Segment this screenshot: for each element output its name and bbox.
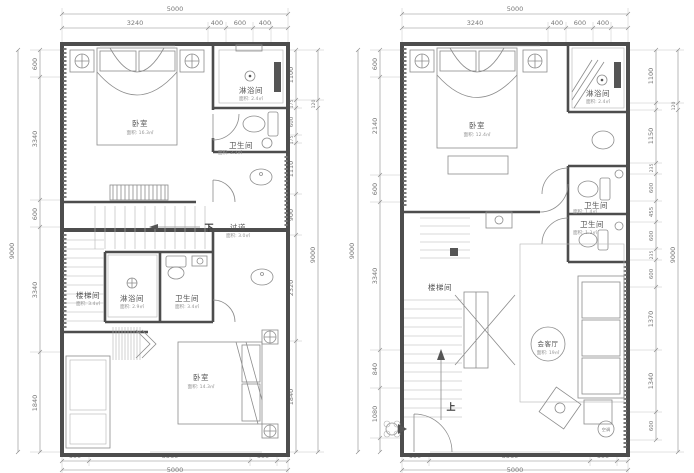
room-label-bath-1: 卫生间 <box>584 200 608 210</box>
room-label-bedroom-lower: 卧室 <box>193 372 209 382</box>
ac-label: 空调 <box>602 426 610 433</box>
dim-right-seg: 235 <box>649 164 655 173</box>
dim-left-seg: 3340 <box>371 268 379 285</box>
dim-top-total: 5000 <box>507 5 524 13</box>
stair-direction-label: 上 <box>446 401 455 413</box>
dim-right-seg: 600 <box>649 268 655 279</box>
dim-top-total: 5000 <box>167 5 184 13</box>
side-table-icon <box>584 400 612 424</box>
walls-left-plan <box>62 44 288 455</box>
dim-right-seg: 1370 <box>647 311 655 328</box>
entry-door-icon <box>384 414 452 452</box>
room-area: 面积: 12.4㎡ <box>463 131 490 138</box>
dim-left-seg: 2140 <box>371 118 379 135</box>
dim-right-seg: 600 <box>649 420 655 431</box>
lounge-chair-icon <box>539 387 581 429</box>
dim-left-seg: 600 <box>371 183 379 195</box>
dim-left-seg: 840 <box>371 363 379 375</box>
sofa-icon <box>520 244 624 402</box>
dim-top-seg: 400 <box>259 19 271 27</box>
stairs-up-icon <box>404 212 512 420</box>
ceiling-fan-icon <box>410 50 547 72</box>
room-area: 面积: 16.3㎡ <box>126 129 153 136</box>
dim-left-seg: 600 <box>31 58 39 70</box>
room-area: 面积: 2.4㎡ <box>239 95 264 102</box>
dim-right-seg: 600 <box>649 230 655 241</box>
dim-top-seg: 3240 <box>127 19 144 27</box>
door-arc <box>213 300 235 322</box>
dim-right-outer: 120 <box>671 102 677 111</box>
tv-stand-icon <box>455 292 515 368</box>
dim-right-seg: 600 <box>649 182 655 193</box>
floor-plan-sheet: 5000 3240 400 600 400 9000 600 3340 600 … <box>0 0 694 473</box>
ceiling-fan-icon <box>70 50 204 72</box>
dim-right-outer: 120 <box>311 100 317 109</box>
door-arc <box>213 180 235 202</box>
radiator-icon <box>110 185 168 200</box>
room-area: 面积: 14.3㎡ <box>187 383 214 390</box>
room-area: 面积: 3.4㎡ <box>76 300 101 307</box>
room-label-bath-upper: 卫生间 <box>229 140 253 150</box>
room-label-living: 会客厅 <box>538 339 559 348</box>
dim-right-seg: 235 <box>649 251 655 260</box>
bed-icon <box>437 48 517 174</box>
room-label-corridor: 过道 <box>230 222 246 232</box>
room-area: 面积: 1.3㎡ <box>573 229 598 236</box>
dim-left-seg: 600 <box>371 58 379 70</box>
dim-side-total: 9000 <box>8 243 16 260</box>
dim-top-seg: 3240 <box>467 19 484 27</box>
room-area: 面积: 2.2㎡ <box>218 149 243 156</box>
toilet-icon <box>578 170 623 200</box>
dim-right-seg: 1150 <box>647 128 655 145</box>
room-label-bath-2: 卫生间 <box>580 219 604 229</box>
sink-icon <box>592 131 614 149</box>
room-label-shower-upper: 淋浴间 <box>239 85 263 95</box>
dim-top-seg: 600 <box>234 19 246 27</box>
dim-left-seg: 3340 <box>31 131 39 148</box>
dim-bottom-total: 5000 <box>507 466 524 473</box>
stairs-down-icon <box>95 206 205 249</box>
dim-left-seg: 1080 <box>371 406 379 423</box>
dim-right-outer: 9000 <box>309 247 317 264</box>
floor-plan-left: 5000 3240 400 600 400 9000 600 3340 600 … <box>0 0 347 473</box>
room-label-stairwell: 楼梯间 <box>428 282 452 292</box>
dim-top-seg: 400 <box>551 19 563 27</box>
dim-right-seg: 1100 <box>647 68 655 85</box>
dim-side-total: 9000 <box>348 243 356 260</box>
room-label-bath-lower: 卫生间 <box>175 293 199 303</box>
room-area: 面积: 3.4㎡ <box>175 303 200 310</box>
ceiling-fan-icon <box>262 330 278 438</box>
sink-icon <box>250 169 273 285</box>
stair-direction-label: 下 <box>204 223 213 234</box>
dim-top-seg: 400 <box>597 19 609 27</box>
shower-icon <box>572 48 624 108</box>
dim-top-seg: 400 <box>211 19 223 27</box>
room-label-stairwell: 楼梯间 <box>76 290 100 300</box>
dim-right-seg: 1340 <box>647 373 655 390</box>
floor-plan-right: 5000 3240 400 600 400 9000 600 2140 600 … <box>347 0 694 473</box>
room-area: 面积: 19㎡ <box>537 349 560 356</box>
dim-left-seg: 3340 <box>31 282 39 299</box>
dim-left-seg: 600 <box>31 208 39 220</box>
door-arc <box>540 168 568 244</box>
dim-right-outer: 9000 <box>669 247 677 264</box>
toilet-icon <box>166 256 207 279</box>
room-area: 面积: 2.9㎡ <box>120 303 145 310</box>
room-label-bedroom-upper: 卧室 <box>132 118 148 128</box>
room-area: 面积: 1.4㎡ <box>573 208 598 215</box>
room-label-bedroom: 卧室 <box>469 120 485 130</box>
room-label-shower: 淋浴间 <box>586 88 610 98</box>
wardrobe-icon <box>66 356 110 448</box>
room-area: 面积: 2.4㎡ <box>586 98 611 105</box>
dim-top-seg: 600 <box>574 19 586 27</box>
bed-icon <box>178 342 262 424</box>
room-label-shower-lower: 淋浴间 <box>120 293 144 303</box>
door-arc <box>213 114 239 140</box>
room-area: 面积: 3.0㎡ <box>226 232 251 239</box>
dim-right-seg: 455 <box>649 207 655 217</box>
dim-left-seg: 1840 <box>31 395 39 412</box>
dim-bottom-total: 5000 <box>167 466 184 473</box>
walls-right-plan <box>402 44 628 455</box>
